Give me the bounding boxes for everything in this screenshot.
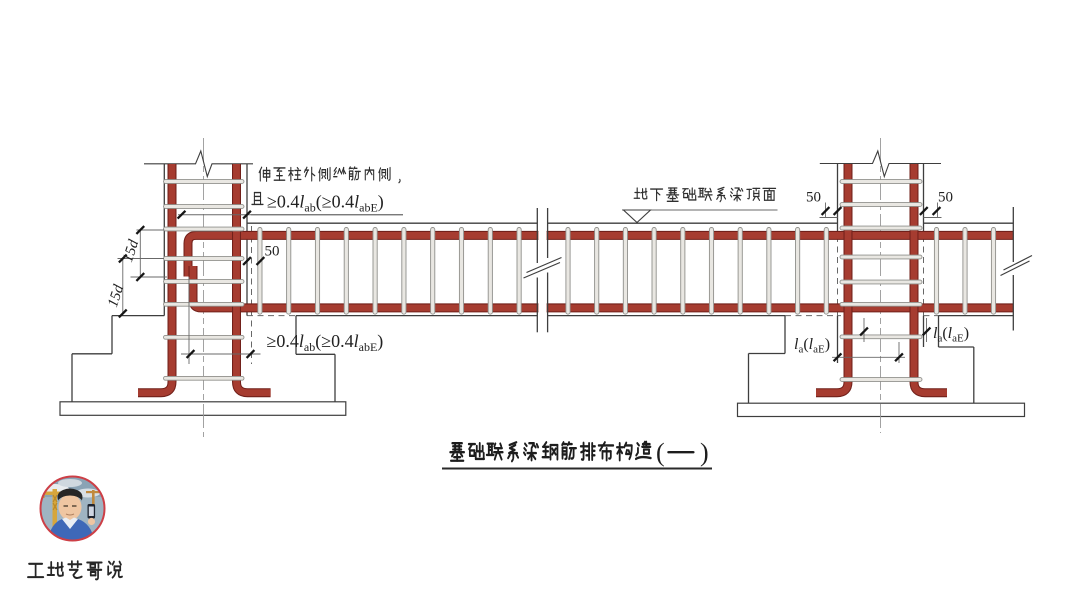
svg-text:(: ( [656,438,665,467]
svg-text:15d: 15d [105,282,127,309]
svg-text:50: 50 [938,190,953,206]
svg-text:15d: 15d [120,237,142,264]
svg-text:50: 50 [265,244,280,260]
svg-text:≥0.4lab(≥0.4labE): ≥0.4lab(≥0.4labE) [267,331,384,354]
svg-text:la(laE): la(laE) [794,336,830,356]
svg-text:≥0.4lab(≥0.4labE): ≥0.4lab(≥0.4labE) [267,192,384,215]
svg-text:): ) [700,438,709,467]
svg-text:50: 50 [806,190,821,206]
